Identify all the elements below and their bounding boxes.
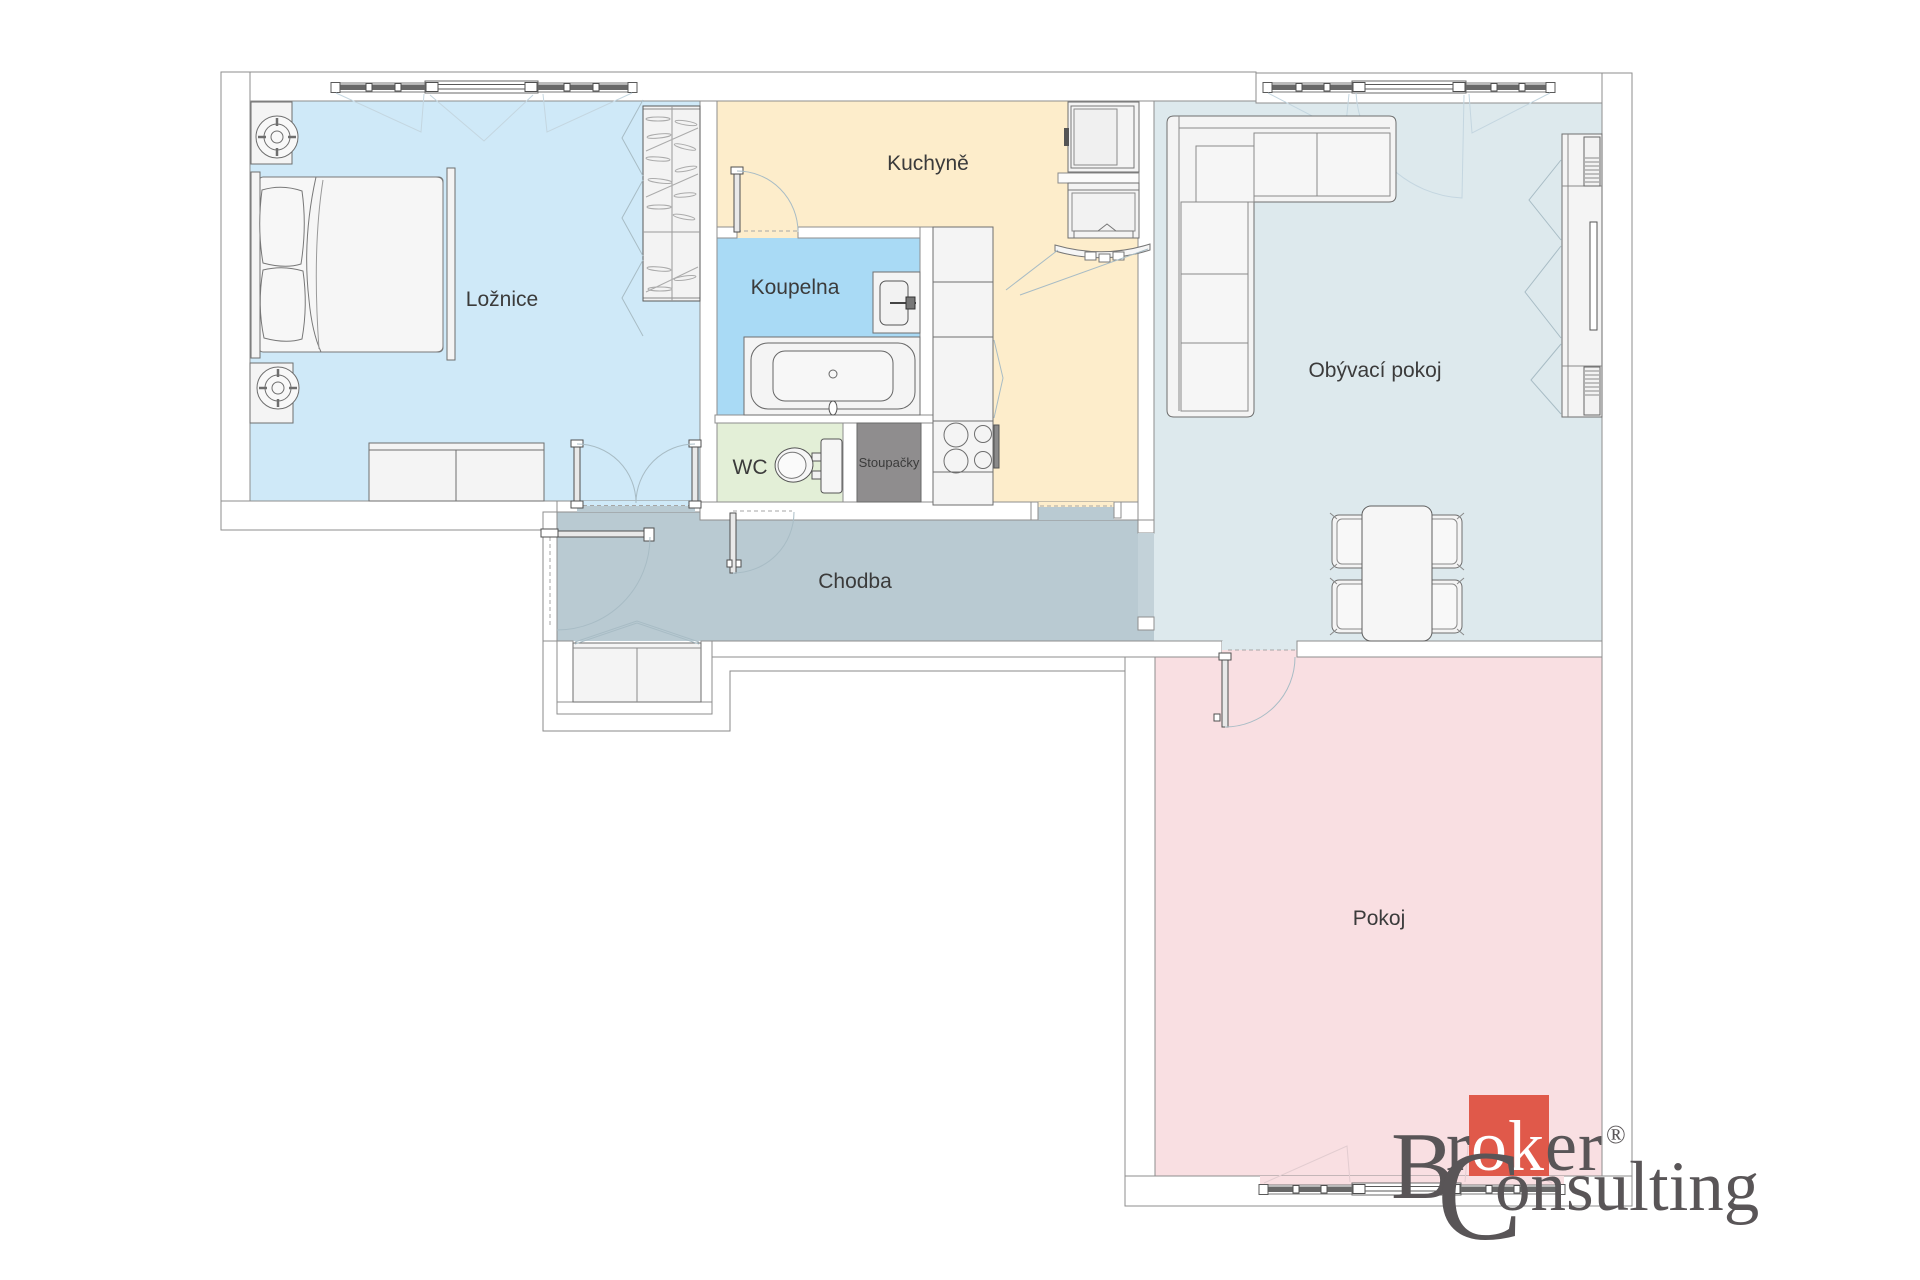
- svg-text:Chodba: Chodba: [818, 570, 892, 593]
- svg-text:Obývací pokoj: Obývací pokoj: [1308, 359, 1441, 382]
- svg-text:Ložnice: Ložnice: [466, 288, 538, 311]
- svg-text:onsulting: onsulting: [1495, 1148, 1759, 1226]
- svg-text:Koupelna: Koupelna: [751, 276, 840, 299]
- svg-text:Pokoj: Pokoj: [1353, 907, 1406, 930]
- svg-text:WC: WC: [733, 456, 768, 479]
- svg-text:Kuchyně: Kuchyně: [887, 152, 969, 175]
- svg-text:Stoupačky: Stoupačky: [859, 455, 920, 470]
- svg-text:®: ®: [1606, 1120, 1626, 1149]
